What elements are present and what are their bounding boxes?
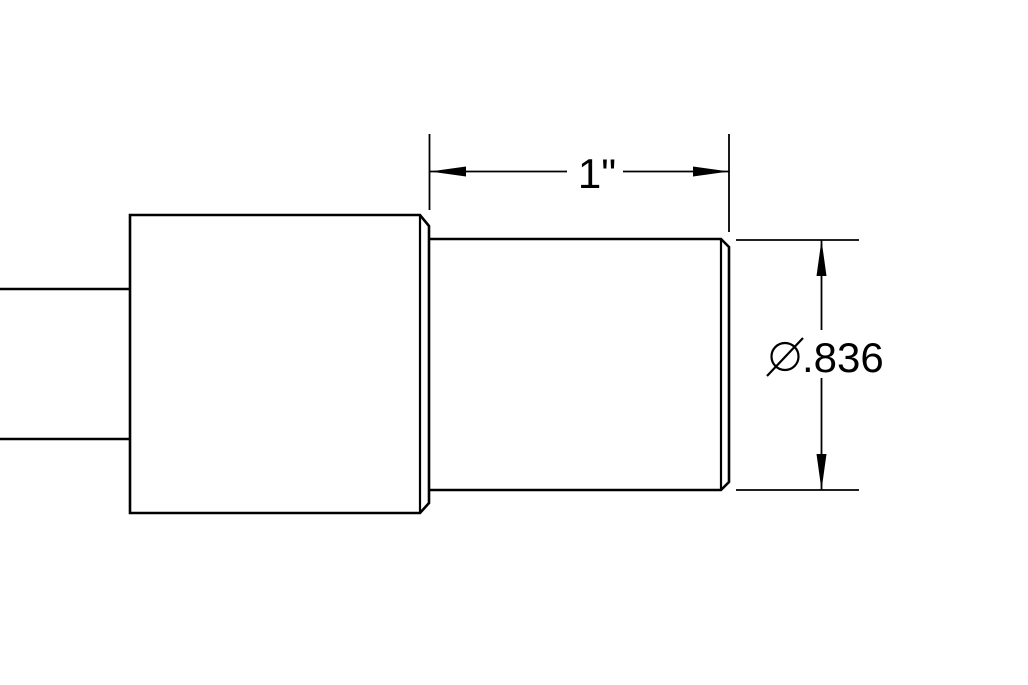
rear-shaft-outline	[0, 289, 130, 439]
technical-drawing: 1" .836	[0, 0, 1028, 685]
arrowhead-right-icon	[693, 167, 729, 177]
arrowhead-up-icon	[817, 240, 827, 276]
diameter-symbol-icon	[767, 338, 803, 376]
diameter-dimension-value: .836	[802, 334, 884, 381]
spigot-outline	[429, 239, 729, 490]
cad-drawing-viewport: 1" .836	[0, 0, 1028, 685]
width-dimension-label: 1"	[578, 150, 616, 197]
arrowhead-left-icon	[430, 167, 466, 177]
body-block-outline	[130, 215, 429, 513]
arrowhead-down-icon	[817, 454, 827, 490]
part-geometry	[0, 215, 729, 513]
